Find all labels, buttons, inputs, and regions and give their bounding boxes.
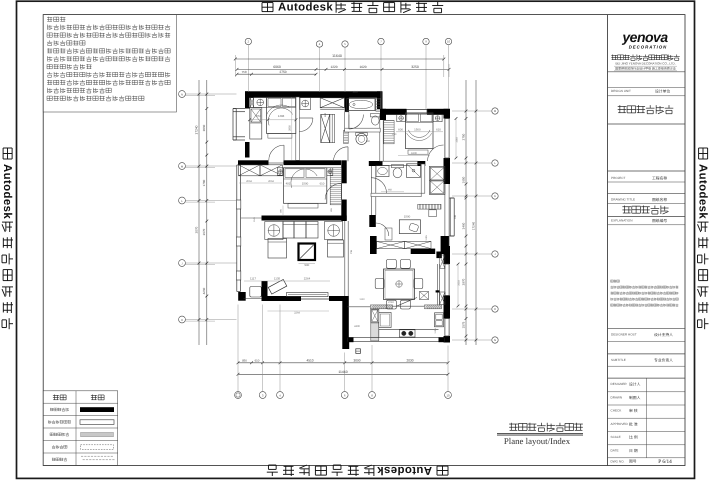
svg-text:设计主持人: 设计主持人 (654, 332, 673, 337)
svg-text:APPROVED: APPROVED (611, 422, 629, 426)
svg-text:1220: 1220 (330, 65, 337, 69)
svg-text:DESIGNER HOST: DESIGNER HOST (611, 332, 637, 336)
svg-text:2970: 2970 (462, 278, 466, 285)
svg-text:制图人: 制图人 (629, 395, 641, 400)
svg-text:DRAWN: DRAWN (611, 395, 623, 399)
svg-text:17240: 17240 (472, 221, 476, 230)
svg-text:审 核: 审 核 (629, 408, 638, 413)
svg-text:10: 10 (447, 40, 451, 44)
svg-text:P 6/14: P 6/14 (658, 459, 672, 465)
svg-text:11640: 11640 (332, 54, 342, 58)
svg-text:1120: 1120 (359, 298, 365, 301)
svg-text:1500: 1500 (404, 215, 411, 219)
svg-text:DECORATION: DECORATION (629, 45, 668, 50)
svg-text:610: 610 (436, 128, 441, 132)
svg-text:2264: 2264 (294, 312, 300, 315)
svg-text:3090: 3090 (353, 358, 360, 362)
svg-text:N: N (181, 92, 183, 96)
svg-text:10: 10 (446, 393, 450, 397)
svg-text:1.80: 1.80 (392, 133, 397, 136)
svg-text:PROJECT: PROJECT (611, 176, 626, 180)
svg-text:1135: 1135 (434, 328, 437, 334)
svg-text:BEI JING YENOVA DECORATION CO.: BEI JING YENOVA DECORATION CO., LTD. (615, 62, 675, 66)
svg-text:610: 610 (255, 358, 260, 362)
svg-text:481: 481 (286, 182, 291, 186)
svg-text:专业负责人: 专业负责人 (654, 357, 673, 362)
svg-text:Plane layout/Index: Plane layout/Index (504, 436, 571, 446)
svg-text:Autodesk: Autodesk (377, 464, 432, 476)
svg-text:1650: 1650 (462, 176, 466, 183)
svg-text:DWG NO.: DWG NO. (611, 459, 625, 463)
svg-text:2070: 2070 (195, 226, 199, 233)
svg-text:1135: 1135 (425, 235, 428, 241)
svg-text:1135: 1135 (274, 277, 281, 281)
svg-text:图纸编号: 图纸编号 (652, 218, 667, 223)
svg-text:900: 900 (366, 140, 371, 143)
svg-text:K: K (494, 194, 496, 198)
svg-text:6060: 6060 (273, 65, 281, 69)
svg-text:SUBTITLE: SUBTITLE (611, 358, 626, 362)
svg-text:H: H (494, 307, 496, 311)
svg-text:SCALE: SCALE (611, 435, 621, 439)
svg-text:DESIGN UNIT: DESIGN UNIT (611, 89, 631, 93)
svg-text:图纸名称: 图纸名称 (652, 197, 667, 202)
svg-text:图号: 图号 (629, 459, 637, 464)
svg-text:DATE: DATE (611, 448, 619, 452)
svg-text:4260: 4260 (202, 287, 206, 294)
svg-text:2670: 2670 (202, 228, 206, 235)
svg-text:DRAWING TITLE: DRAWING TITLE (611, 198, 635, 202)
svg-text:1141: 1141 (253, 216, 256, 222)
svg-text:2750: 2750 (462, 133, 466, 140)
svg-text:2710: 2710 (388, 301, 394, 304)
svg-text:设计单位: 设计单位 (655, 89, 670, 94)
svg-text:2264: 2264 (304, 277, 311, 281)
svg-text:H: H (181, 318, 183, 322)
svg-text:2400: 2400 (354, 325, 360, 328)
svg-text:1800: 1800 (411, 152, 417, 155)
svg-text:1620: 1620 (359, 65, 366, 69)
svg-text:1575: 1575 (462, 321, 466, 328)
svg-text:DESIGNER: DESIGNER (611, 382, 628, 386)
svg-text:设计人: 设计人 (629, 381, 641, 386)
svg-text:日 期: 日 期 (629, 448, 638, 453)
svg-text:738: 738 (350, 249, 353, 254)
svg-text:17240: 17240 (195, 125, 199, 134)
svg-text:3250: 3250 (411, 65, 419, 69)
svg-text:1646: 1646 (352, 91, 358, 94)
svg-text:G: G (494, 338, 496, 342)
svg-text:600: 600 (398, 128, 403, 132)
svg-text:2063: 2063 (268, 180, 274, 183)
svg-text:国家建筑装饰行业设计甲级 施工壹级资质企业: 国家建筑装饰行业设计甲级 施工壹级资质企业 (615, 66, 676, 70)
svg-text:950: 950 (388, 189, 393, 192)
svg-text:批 准: 批 准 (629, 421, 638, 426)
svg-text:2750: 2750 (279, 70, 286, 74)
svg-text:Autodesk: Autodesk (278, 2, 333, 14)
svg-text:1780: 1780 (202, 179, 206, 186)
svg-text:572: 572 (256, 114, 261, 118)
svg-text:2063: 2063 (246, 180, 252, 183)
svg-text:850: 850 (242, 358, 247, 362)
svg-text:CHECK: CHECK (611, 409, 623, 413)
svg-text:860: 860 (324, 112, 327, 117)
svg-text:11460: 11460 (338, 370, 347, 374)
svg-text:610: 610 (320, 182, 325, 186)
svg-text:1117: 1117 (250, 277, 256, 281)
svg-text:比 例: 比 例 (629, 435, 638, 440)
svg-text:Autodesk: Autodesk (697, 164, 709, 219)
svg-text:2030: 2030 (406, 358, 413, 362)
svg-text:750: 750 (241, 70, 246, 74)
svg-text:3860: 3860 (202, 124, 206, 131)
svg-text:4510: 4510 (306, 358, 313, 362)
svg-text:工程名称: 工程名称 (652, 175, 667, 180)
svg-text:EXPLANATION: EXPLANATION (611, 219, 632, 223)
svg-text:1500: 1500 (414, 128, 421, 132)
svg-text:1488: 1488 (278, 114, 285, 118)
svg-text:yenova: yenova (621, 29, 668, 45)
svg-text:Autodesk: Autodesk (1, 164, 13, 219)
svg-text:2850: 2850 (289, 125, 292, 131)
svg-text:1500: 1500 (302, 182, 309, 186)
svg-text:3460: 3460 (462, 222, 466, 229)
